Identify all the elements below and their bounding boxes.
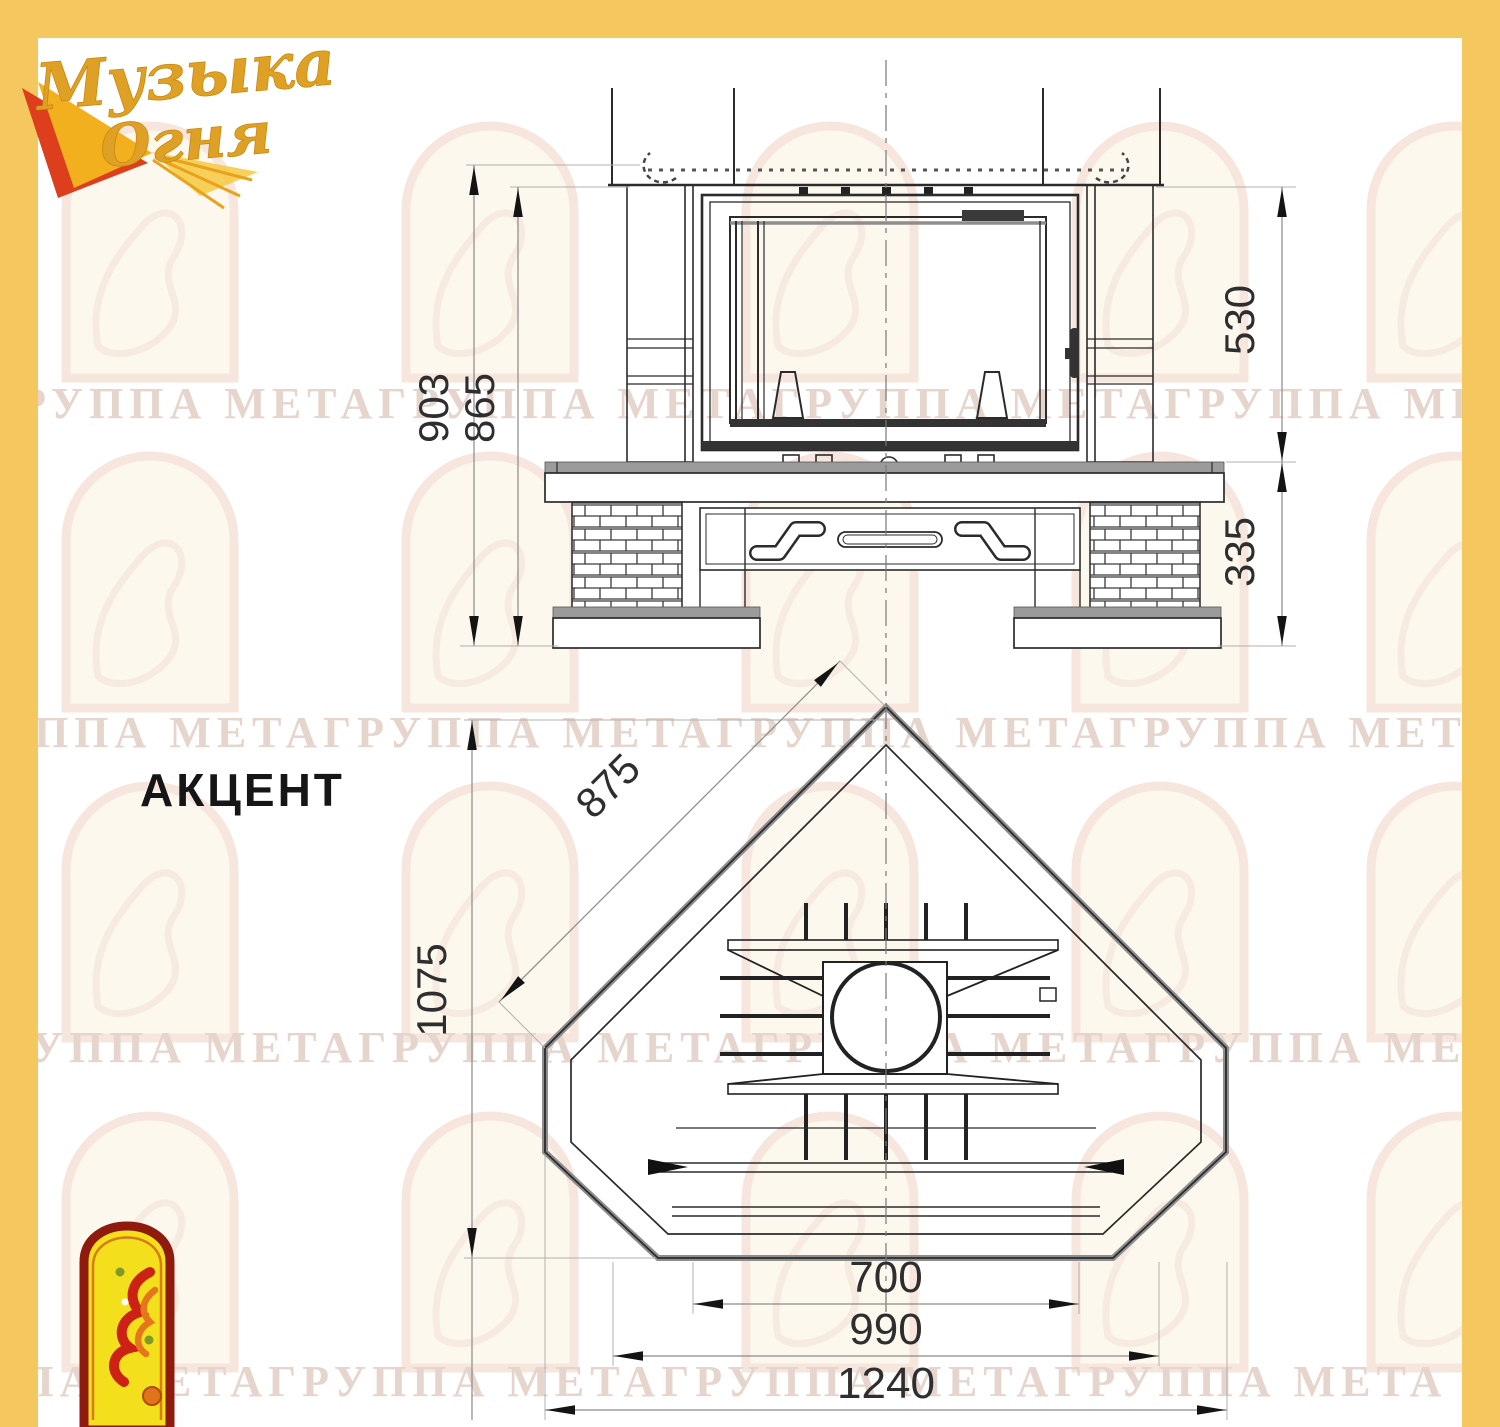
brick-pillar-right	[1090, 502, 1200, 608]
watermark-arch	[746, 126, 914, 378]
dim-label-530: 530	[1216, 285, 1263, 355]
corner-emblem	[84, 1226, 170, 1427]
watermark-text-row: ГРУППА МЕТАГРУППА МЕТАГРУППА МЕТАГРУППА …	[0, 1023, 1500, 1072]
drawing-svg: ГРУППА МЕТАГРУППА МЕТАГРУППА МЕТАГРУППА …	[0, 0, 1500, 1427]
frame-right-band	[1462, 0, 1500, 1427]
dim-label-335: 335	[1216, 517, 1263, 587]
brick-pillar-left	[572, 502, 682, 608]
watermark-arch	[406, 126, 574, 378]
watermark-arch	[1076, 786, 1244, 1038]
watermark-arch	[66, 456, 234, 708]
frame-top-band	[0, 0, 1500, 38]
dim-label-903: 903	[410, 373, 457, 443]
dim-label-700: 700	[849, 1253, 922, 1302]
emblem-dot-icon	[143, 1387, 161, 1405]
dim-label-1075: 1075	[408, 943, 455, 1036]
frame-left-band	[0, 0, 38, 1427]
dim-label-990: 990	[849, 1305, 922, 1354]
watermark-arch	[66, 786, 234, 1038]
bench-slab	[545, 462, 1224, 502]
model-name-label: АКЦЕНТ	[140, 764, 345, 816]
dim-label-865: 865	[456, 373, 503, 443]
watermark-text-row: ГРУППА МЕТАГРУППА МЕТАГРУППА МЕТАГРУППА …	[0, 1357, 1447, 1406]
dim-label-1240: 1240	[837, 1359, 935, 1408]
watermark-arch	[1076, 1116, 1244, 1368]
door-brand-plate	[962, 210, 1024, 221]
door-handle	[1070, 328, 1079, 378]
watermark-text-row: ГРУППА МЕТАГРУППА МЕТАГРУППА МЕТАГРУППА …	[0, 708, 1500, 757]
fireplace-spec-sheet: ГРУППА МЕТАГРУППА МЕТАГРУППА МЕТАГРУППА …	[0, 0, 1500, 1427]
